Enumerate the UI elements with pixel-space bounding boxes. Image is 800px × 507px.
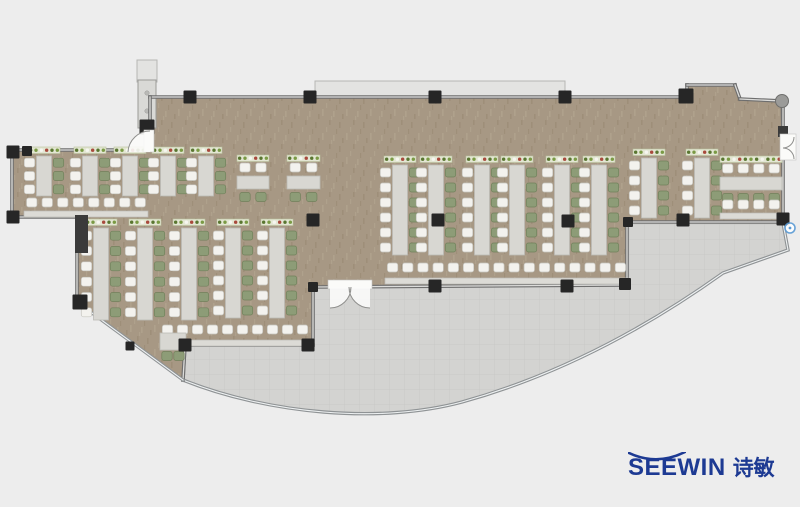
chair-white bbox=[579, 198, 589, 207]
chair-white bbox=[539, 263, 549, 272]
planter bbox=[129, 219, 161, 226]
chair-green bbox=[286, 306, 296, 315]
chair-white bbox=[416, 168, 426, 177]
planter-plant bbox=[502, 158, 505, 161]
chair-white bbox=[497, 243, 507, 252]
chair-green bbox=[174, 352, 184, 361]
chair-white bbox=[213, 246, 223, 255]
planter bbox=[173, 219, 205, 226]
chair-white bbox=[615, 263, 625, 272]
planter-plant bbox=[218, 149, 221, 152]
planter-plant bbox=[288, 157, 291, 160]
planter-plant bbox=[634, 151, 637, 154]
table bbox=[429, 165, 444, 255]
chair-green bbox=[445, 183, 455, 192]
planter-plant bbox=[426, 158, 429, 161]
planter-plant bbox=[299, 157, 302, 160]
chair-white bbox=[257, 261, 267, 270]
chair-white bbox=[416, 243, 426, 252]
table bbox=[138, 228, 153, 320]
chair-white bbox=[738, 164, 748, 173]
table bbox=[393, 165, 408, 255]
chair-green bbox=[110, 247, 120, 256]
chair-green bbox=[256, 193, 266, 202]
chair-white bbox=[169, 277, 179, 286]
planter-plant bbox=[212, 149, 215, 152]
chair-white bbox=[213, 306, 223, 315]
planter-plant bbox=[294, 157, 297, 160]
chair-white bbox=[585, 263, 595, 272]
chair-green bbox=[110, 231, 120, 240]
column bbox=[179, 339, 192, 352]
planter bbox=[466, 156, 498, 163]
chair-green bbox=[53, 185, 63, 194]
planter-plant bbox=[262, 221, 265, 224]
column bbox=[73, 295, 88, 310]
chair-white bbox=[24, 185, 34, 194]
chair-green bbox=[110, 293, 120, 302]
column bbox=[677, 214, 690, 227]
logo-cjk-text: 诗敏 bbox=[733, 452, 775, 482]
chair-white bbox=[70, 172, 80, 181]
chair-white bbox=[380, 183, 390, 192]
chair-green bbox=[198, 262, 208, 271]
chair-white bbox=[509, 263, 519, 272]
chair-white bbox=[462, 213, 472, 222]
planter-plant bbox=[708, 151, 711, 154]
chair-green bbox=[290, 193, 300, 202]
chair-white bbox=[169, 247, 179, 256]
planter-plant bbox=[180, 149, 183, 152]
table bbox=[94, 228, 109, 320]
planter-plant bbox=[401, 158, 404, 161]
planter-plant bbox=[229, 221, 232, 224]
planter bbox=[633, 149, 665, 156]
chair-white bbox=[70, 158, 80, 167]
chair-white bbox=[213, 261, 223, 270]
chair-green bbox=[198, 293, 208, 302]
planter-plant bbox=[50, 149, 53, 152]
planter bbox=[583, 156, 615, 163]
column bbox=[562, 215, 575, 228]
table bbox=[37, 156, 52, 196]
planter-plant bbox=[698, 151, 701, 154]
chair-white bbox=[125, 262, 135, 271]
planter-plant bbox=[478, 158, 481, 161]
planter-plant bbox=[584, 158, 587, 161]
chair-green bbox=[286, 291, 296, 300]
chair-green bbox=[240, 193, 250, 202]
chair-green bbox=[99, 172, 109, 181]
planter-plant bbox=[196, 149, 199, 152]
chair-white bbox=[222, 325, 232, 334]
planter bbox=[420, 156, 452, 163]
column bbox=[7, 146, 20, 159]
chair-white bbox=[542, 198, 552, 207]
planter-plant bbox=[107, 221, 110, 224]
planter-plant bbox=[97, 221, 100, 224]
chair-white bbox=[497, 198, 507, 207]
planter-plant bbox=[185, 221, 188, 224]
column bbox=[561, 280, 574, 293]
planter-plant bbox=[113, 221, 116, 224]
planter-plant bbox=[56, 149, 59, 152]
chair-white bbox=[416, 228, 426, 237]
chair-white bbox=[125, 277, 135, 286]
planter-plant bbox=[749, 158, 752, 161]
planter-plant bbox=[86, 149, 89, 152]
planter-plant bbox=[595, 158, 598, 161]
planter-plant bbox=[75, 149, 78, 152]
chair-white bbox=[125, 293, 135, 302]
round-column bbox=[776, 95, 789, 108]
chair-white bbox=[579, 243, 589, 252]
planter-plant bbox=[529, 158, 532, 161]
wall-block bbox=[75, 215, 88, 253]
chair-white bbox=[462, 183, 472, 192]
chair-green bbox=[286, 246, 296, 255]
chair-green bbox=[608, 213, 618, 222]
planter bbox=[190, 147, 222, 154]
chair-green bbox=[110, 277, 120, 286]
column bbox=[126, 342, 135, 351]
planter-plant bbox=[265, 157, 268, 160]
planter-plant bbox=[102, 149, 105, 152]
planter-plant bbox=[727, 158, 730, 161]
floor-plan: SEEWIN 诗敏 bbox=[0, 0, 800, 507]
chair-white bbox=[282, 325, 292, 334]
logo-swoosh-icon bbox=[628, 452, 686, 463]
planter-plant bbox=[563, 158, 566, 161]
chair-white bbox=[723, 200, 733, 209]
chair-white bbox=[89, 198, 99, 207]
planter-plant bbox=[190, 221, 193, 224]
chair-white bbox=[81, 277, 91, 286]
planter-plant bbox=[761, 158, 764, 161]
planter-plant bbox=[483, 158, 486, 161]
chair-white bbox=[380, 213, 390, 222]
column bbox=[623, 217, 633, 227]
chair-white bbox=[256, 163, 266, 172]
chair-white bbox=[257, 231, 267, 240]
chair-white bbox=[24, 158, 34, 167]
chair-white bbox=[73, 198, 83, 207]
chair-green bbox=[154, 231, 164, 240]
chair-white bbox=[213, 231, 223, 240]
column bbox=[429, 91, 442, 104]
planter-plant bbox=[766, 158, 769, 161]
chair-green bbox=[154, 262, 164, 271]
chair-white bbox=[307, 163, 317, 172]
chair-white bbox=[24, 172, 34, 181]
chair-green bbox=[445, 168, 455, 177]
column bbox=[7, 211, 20, 224]
chair-white bbox=[213, 291, 223, 300]
planter-plant bbox=[448, 158, 451, 161]
chair-white bbox=[463, 263, 473, 272]
chair-white bbox=[186, 172, 196, 181]
chair-white bbox=[416, 183, 426, 192]
table bbox=[720, 177, 782, 190]
chair-white bbox=[479, 263, 489, 272]
column bbox=[302, 339, 315, 352]
planter-plant bbox=[421, 158, 424, 161]
chair-green bbox=[526, 228, 536, 237]
planter bbox=[237, 155, 269, 162]
planter-plant bbox=[91, 149, 94, 152]
chair-green bbox=[445, 198, 455, 207]
planter-plant bbox=[574, 158, 577, 161]
table bbox=[287, 176, 320, 189]
planter-plant bbox=[278, 221, 281, 224]
chair-white bbox=[570, 263, 580, 272]
chair-green bbox=[526, 213, 536, 222]
table bbox=[182, 228, 197, 320]
planter-plant bbox=[157, 221, 160, 224]
planter-plant bbox=[507, 158, 510, 161]
planter-plant bbox=[135, 221, 138, 224]
chair-green bbox=[198, 308, 208, 317]
table bbox=[83, 156, 98, 196]
planter-plant bbox=[406, 158, 409, 161]
planter-plant bbox=[772, 158, 775, 161]
chair-green bbox=[711, 191, 721, 200]
planter-plant bbox=[207, 149, 210, 152]
planter bbox=[74, 147, 106, 154]
chair-white bbox=[380, 228, 390, 237]
chair-white bbox=[120, 198, 130, 207]
chair-green bbox=[658, 206, 668, 215]
chair-green bbox=[162, 352, 172, 361]
chair-white bbox=[267, 325, 277, 334]
table bbox=[475, 165, 490, 255]
planter-plant bbox=[195, 221, 198, 224]
planter-plant bbox=[396, 158, 399, 161]
planter-plant bbox=[655, 151, 658, 154]
chair-white bbox=[110, 158, 120, 167]
chair-green bbox=[198, 231, 208, 240]
column bbox=[559, 91, 572, 104]
column bbox=[679, 89, 694, 104]
planter-plant bbox=[174, 149, 177, 152]
planter-plant bbox=[650, 151, 653, 154]
chair-green bbox=[608, 168, 618, 177]
planter-plant bbox=[661, 151, 664, 154]
chair-green bbox=[445, 243, 455, 252]
planter-plant bbox=[552, 158, 555, 161]
column bbox=[184, 91, 197, 104]
planter-plant bbox=[201, 221, 204, 224]
chair-white bbox=[542, 243, 552, 252]
chair-white bbox=[754, 200, 764, 209]
chair-white bbox=[579, 168, 589, 177]
planter-plant bbox=[523, 158, 526, 161]
planter-plant bbox=[310, 157, 313, 160]
chair-white bbox=[186, 185, 196, 194]
planter-plant bbox=[243, 157, 246, 160]
planter-plant bbox=[45, 149, 48, 152]
planter-plant bbox=[732, 158, 735, 161]
planter-plant bbox=[589, 158, 592, 161]
chair-green bbox=[99, 185, 109, 194]
chair-green bbox=[608, 228, 618, 237]
table bbox=[237, 176, 269, 189]
chair-white bbox=[257, 306, 267, 315]
chair-white bbox=[579, 228, 589, 237]
chair-green bbox=[154, 277, 164, 286]
planter-plant bbox=[558, 158, 561, 161]
chair-green bbox=[445, 228, 455, 237]
column bbox=[619, 278, 631, 290]
chair-white bbox=[629, 206, 639, 215]
planter-plant bbox=[513, 158, 516, 161]
chair-white bbox=[387, 263, 397, 272]
planter-plant bbox=[687, 151, 690, 154]
chair-white bbox=[148, 185, 158, 194]
planter bbox=[85, 219, 117, 226]
chair-white bbox=[448, 263, 458, 272]
chair-white bbox=[58, 198, 68, 207]
chair-green bbox=[242, 246, 252, 255]
chair-white bbox=[554, 263, 564, 272]
planter-plant bbox=[174, 221, 177, 224]
planter-plant bbox=[239, 221, 242, 224]
planter-plant bbox=[96, 149, 99, 152]
planter-plant bbox=[120, 149, 123, 152]
chair-green bbox=[608, 183, 618, 192]
chair-green bbox=[526, 198, 536, 207]
planter-plant bbox=[218, 221, 221, 224]
planter-plant bbox=[721, 158, 724, 161]
planter-plant bbox=[259, 157, 262, 160]
table bbox=[695, 158, 710, 218]
chair-white bbox=[579, 183, 589, 192]
chair-green bbox=[242, 276, 252, 285]
chair-white bbox=[682, 161, 692, 170]
planter-plant bbox=[249, 157, 252, 160]
chair-white bbox=[380, 168, 390, 177]
chair-green bbox=[154, 247, 164, 256]
planter bbox=[501, 156, 533, 163]
planter-plant bbox=[273, 221, 276, 224]
chair-green bbox=[658, 191, 668, 200]
canopy-slab bbox=[137, 60, 157, 82]
chair-white bbox=[497, 213, 507, 222]
chair-white bbox=[462, 228, 472, 237]
planter-plant bbox=[169, 149, 172, 152]
planter-plant bbox=[267, 221, 270, 224]
table bbox=[226, 228, 241, 318]
planter-plant bbox=[385, 158, 388, 161]
chair-white bbox=[542, 168, 552, 177]
chair-white bbox=[257, 291, 267, 300]
chair-white bbox=[629, 161, 639, 170]
planter-plant bbox=[238, 157, 241, 160]
counter bbox=[385, 278, 628, 284]
planter-plant bbox=[102, 221, 105, 224]
planter-plant bbox=[305, 157, 308, 160]
chair-white bbox=[433, 263, 443, 272]
chair-green bbox=[658, 176, 668, 185]
chair-white bbox=[192, 325, 202, 334]
chair-white bbox=[462, 243, 472, 252]
floor-plan-svg bbox=[0, 0, 800, 507]
chair-green bbox=[242, 261, 252, 270]
chair-white bbox=[27, 198, 37, 207]
chair-green bbox=[608, 198, 618, 207]
planter-plant bbox=[245, 221, 248, 224]
planter-plant bbox=[568, 158, 571, 161]
table bbox=[555, 165, 570, 255]
chair-white bbox=[462, 168, 472, 177]
chair-white bbox=[769, 164, 779, 173]
table bbox=[642, 158, 657, 218]
logo: SEEWIN 诗敏 bbox=[628, 452, 798, 492]
planter-plant bbox=[467, 158, 470, 161]
chair-white bbox=[125, 231, 135, 240]
planter-plant bbox=[141, 221, 144, 224]
chair-white bbox=[416, 198, 426, 207]
chair-green bbox=[198, 277, 208, 286]
chair-white bbox=[297, 325, 307, 334]
chair-white bbox=[497, 183, 507, 192]
planter-plant bbox=[289, 221, 292, 224]
planter-plant bbox=[738, 158, 741, 161]
chair-green bbox=[53, 158, 63, 167]
planter-plant bbox=[80, 149, 83, 152]
chair-green bbox=[526, 243, 536, 252]
planter bbox=[287, 155, 320, 162]
column bbox=[22, 146, 32, 156]
counter bbox=[720, 213, 782, 219]
chair-white bbox=[290, 163, 300, 172]
chair-white bbox=[497, 228, 507, 237]
chair-white bbox=[169, 231, 179, 240]
planter bbox=[261, 219, 293, 226]
chair-green bbox=[110, 262, 120, 271]
chair-white bbox=[542, 183, 552, 192]
chair-white bbox=[169, 308, 179, 317]
chair-white bbox=[723, 164, 733, 173]
planter-plant bbox=[40, 149, 43, 152]
planter-plant bbox=[488, 158, 491, 161]
planter-plant bbox=[283, 221, 286, 224]
planter-plant bbox=[437, 158, 440, 161]
planter-plant bbox=[34, 149, 37, 152]
chair-white bbox=[42, 198, 52, 207]
chair-green bbox=[110, 308, 120, 317]
chair-white bbox=[524, 263, 534, 272]
table bbox=[161, 156, 176, 196]
chair-green bbox=[242, 306, 252, 315]
chair-green bbox=[215, 185, 225, 194]
planter-plant bbox=[703, 151, 706, 154]
planter-plant bbox=[518, 158, 521, 161]
table bbox=[510, 165, 525, 255]
planter-plant bbox=[692, 151, 695, 154]
table bbox=[199, 156, 214, 196]
planter-plant bbox=[179, 221, 182, 224]
chair-white bbox=[738, 200, 748, 209]
chair-white bbox=[207, 325, 217, 334]
chair-green bbox=[215, 172, 225, 181]
planter-plant bbox=[639, 151, 642, 154]
chair-white bbox=[462, 198, 472, 207]
planter-plant bbox=[605, 158, 608, 161]
chair-white bbox=[494, 263, 504, 272]
chair-white bbox=[257, 246, 267, 255]
chair-white bbox=[110, 185, 120, 194]
